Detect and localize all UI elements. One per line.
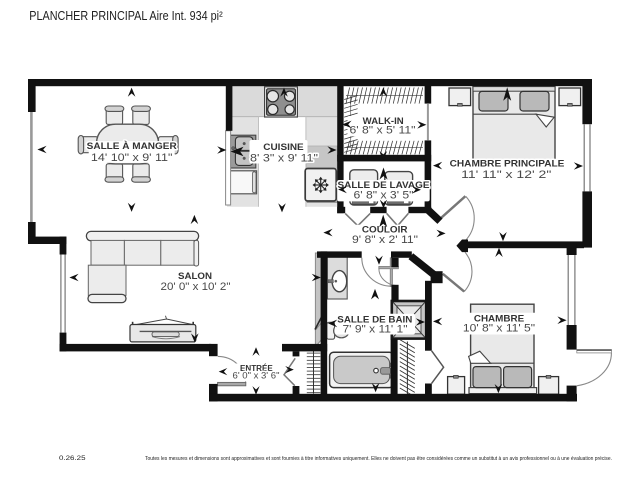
svg-text:CUISINE: CUISINE	[263, 141, 303, 152]
svg-text:10' 8" x 11' 5": 10' 8" x 11' 5"	[463, 323, 535, 335]
svg-text:14' 10" x 9' 11": 14' 10" x 9' 11"	[91, 152, 173, 164]
svg-text:PLANCHER PRINCIPAL Aire Int. 9: PLANCHER PRINCIPAL Aire Int. 934 pi²	[29, 9, 222, 23]
svg-text:7' 9" x 11' 1": 7' 9" x 11' 1"	[343, 323, 408, 335]
svg-text:SALLE À MANGER: SALLE À MANGER	[87, 140, 177, 151]
svg-text:9' 8" x 2' 11": 9' 8" x 2' 11"	[352, 234, 418, 246]
svg-text:8' 3" x 9' 11": 8' 3" x 9' 11"	[250, 152, 318, 164]
svg-text:COULOIR: COULOIR	[362, 224, 408, 235]
svg-text:SALON: SALON	[178, 270, 212, 281]
svg-text:CHAMBRE: CHAMBRE	[474, 312, 524, 323]
svg-text:11' 11" x 12' 2": 11' 11" x 12' 2"	[461, 169, 551, 181]
svg-text:6' 8" x 3' 5": 6' 8" x 3' 5"	[354, 190, 414, 202]
svg-text:6' 0" x 3' 6": 6' 0" x 3' 6"	[233, 370, 280, 381]
svg-text:0.26.25: 0.26.25	[59, 455, 86, 462]
svg-text:20' 0" x 10' 2": 20' 0" x 10' 2"	[161, 281, 231, 293]
svg-text:CHAMBRE PRINCIPALE: CHAMBRE PRINCIPALE	[450, 158, 565, 169]
svg-text:6' 8" x 5' 11": 6' 8" x 5' 11"	[350, 125, 416, 137]
svg-text:Toutes les mesures et dimensio: Toutes les mesures et dimensions sont ap…	[145, 456, 612, 462]
